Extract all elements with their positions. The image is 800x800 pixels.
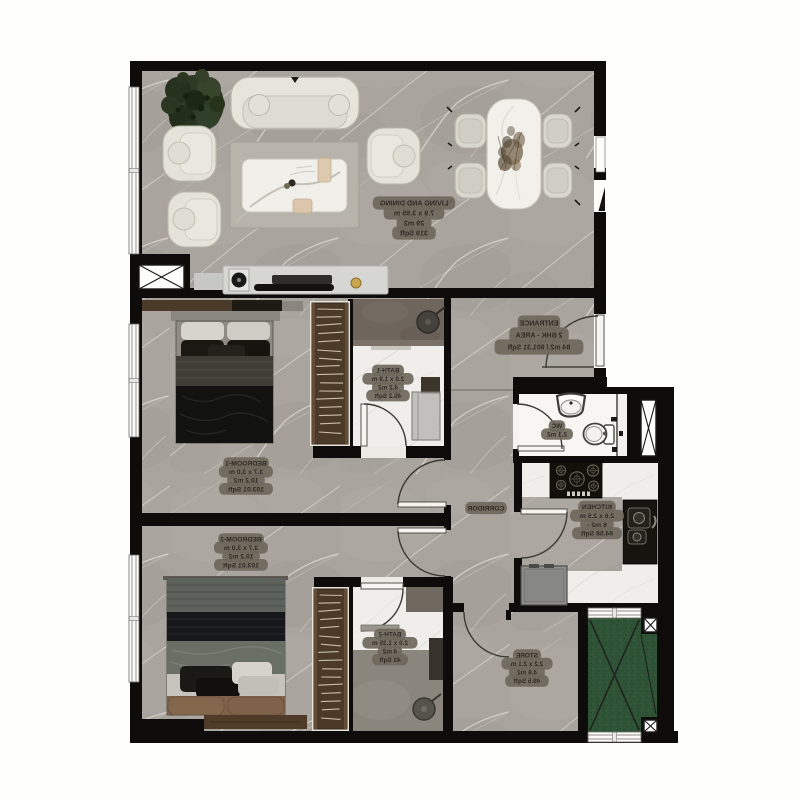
svg-text:6 m2 -: 6 m2 - bbox=[587, 522, 607, 529]
svg-text:2.0 x 1.9 m: 2.0 x 1.9 m bbox=[372, 376, 405, 383]
svg-text:LIVING AND DINING: LIVING AND DINING bbox=[379, 199, 448, 208]
svg-text:10.2 m2: 10.2 m2 bbox=[233, 478, 258, 485]
svg-text:4 m2: 4 m2 bbox=[382, 649, 397, 656]
svg-text:29 m2: 29 m2 bbox=[404, 219, 424, 228]
svg-text:319 Sqft: 319 Sqft bbox=[399, 229, 428, 238]
svg-text:103.01 Sqft: 103.01 Sqft bbox=[227, 486, 264, 493]
svg-text:7.9 x 3.65 m: 7.9 x 3.65 m bbox=[394, 209, 434, 218]
svg-text:64.58 Sqft: 64.58 Sqft bbox=[580, 531, 613, 538]
svg-text:103.01 Sqft: 103.01 Sqft bbox=[222, 562, 259, 569]
svg-text:2.2 x 2.1 m: 2.2 x 2.1 m bbox=[511, 661, 544, 668]
svg-text:CORRIDOR: CORRIDOR bbox=[467, 505, 504, 512]
svg-text:2 BHK - AREA: 2 BHK - AREA bbox=[516, 333, 563, 340]
svg-text:2.1 m2: 2.1 m2 bbox=[547, 431, 567, 438]
svg-text:84 m2 / 901.31 Sqft: 84 m2 / 901.31 Sqft bbox=[507, 345, 570, 352]
svg-text:BEDROOM-1: BEDROOM-1 bbox=[225, 461, 267, 468]
svg-text:2.0 x 1.35 m: 2.0 x 1.35 m bbox=[372, 640, 408, 647]
svg-text:3.7 x 3.0 m: 3.7 x 3.0 m bbox=[229, 469, 263, 476]
svg-text:BATH-1: BATH-1 bbox=[376, 368, 399, 375]
svg-text:4.6 m2: 4.6 m2 bbox=[517, 670, 537, 677]
svg-text:3.7 x 3.0 m: 3.7 x 3.0 m bbox=[224, 545, 258, 552]
svg-text:49.5 Sqft: 49.5 Sqft bbox=[513, 678, 541, 685]
svg-text:ENTRANCE: ENTRANCE bbox=[519, 321, 558, 328]
svg-text:45.2 Sqft: 45.2 Sqft bbox=[374, 393, 402, 400]
svg-text:WC: WC bbox=[551, 423, 562, 430]
svg-text:2.6 x 2.5 m: 2.6 x 2.5 m bbox=[580, 513, 614, 520]
svg-text:43 Sqft: 43 Sqft bbox=[378, 657, 400, 664]
svg-text:BATH-2: BATH-2 bbox=[378, 632, 401, 639]
svg-text:STORE: STORE bbox=[515, 652, 538, 659]
svg-text:BEDROOM-2: BEDROOM-2 bbox=[220, 537, 262, 544]
svg-text:4.2 m2: 4.2 m2 bbox=[378, 385, 398, 392]
svg-text:10.2 m2: 10.2 m2 bbox=[228, 554, 253, 561]
svg-text:KITCHEN: KITCHEN bbox=[582, 504, 612, 511]
